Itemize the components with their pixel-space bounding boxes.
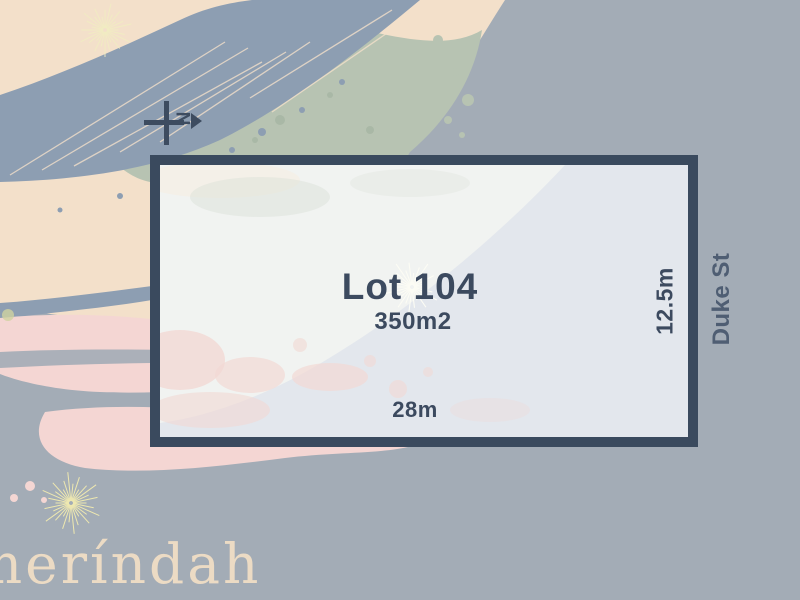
lot-title: Lot 104 <box>146 266 674 308</box>
lot-area: 350m2 <box>149 308 677 336</box>
street-label: Duke St <box>708 253 736 346</box>
north-arrowhead-icon <box>191 113 202 129</box>
brand-watermark: meríndah <box>0 532 261 596</box>
lot-boundary: Lot 104 350m2 28m 12.5m <box>150 155 698 447</box>
lot-plan-canvas: meríndah N L <box>0 0 800 600</box>
frontage-dimension: 28m <box>151 397 679 423</box>
north-letter: N <box>172 112 191 126</box>
north-arrow-icon: N <box>142 96 208 148</box>
side-dimension: 12.5m <box>652 267 679 335</box>
